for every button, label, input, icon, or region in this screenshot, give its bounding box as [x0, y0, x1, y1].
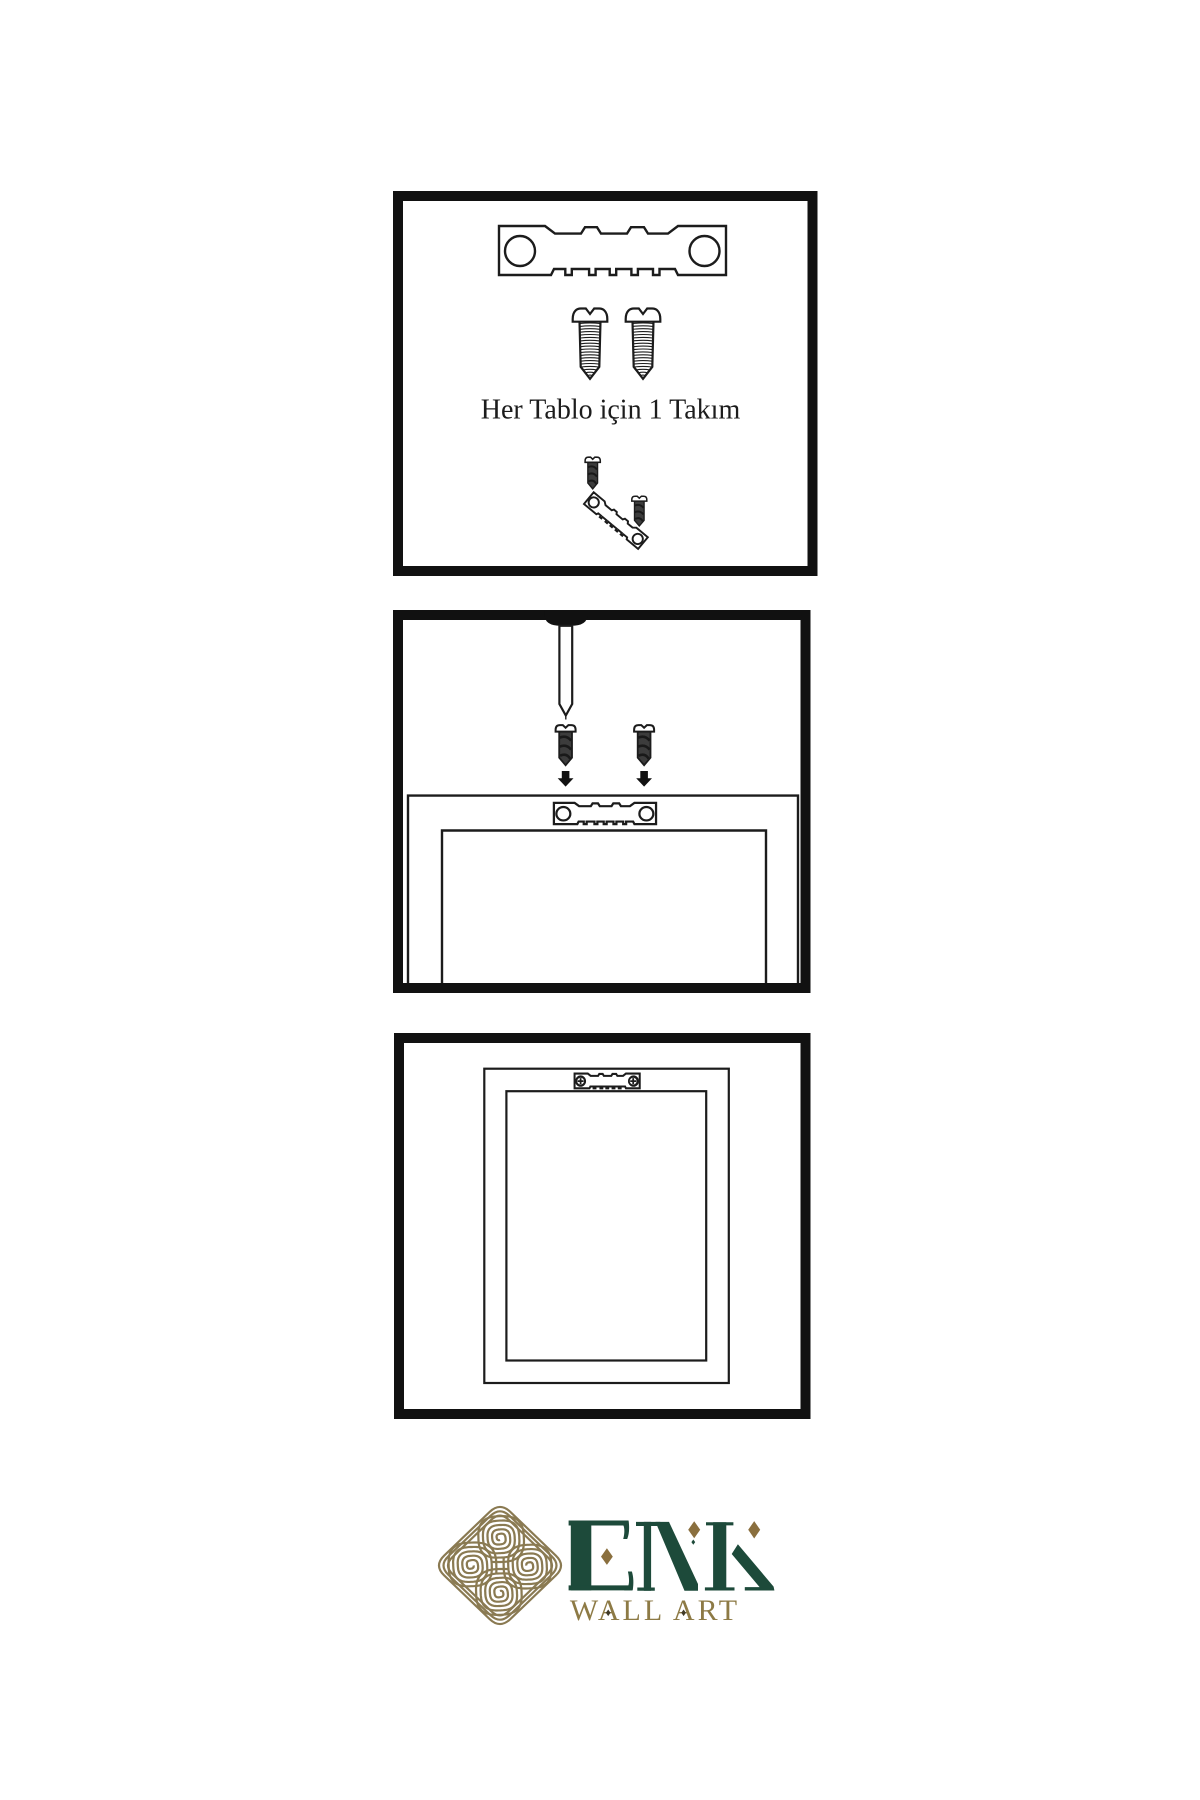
svg-text:WALL ART: WALL ART	[570, 1594, 740, 1627]
svg-text:Her Tablo için 1 Takım: Her Tablo için 1 Takım	[481, 395, 741, 426]
